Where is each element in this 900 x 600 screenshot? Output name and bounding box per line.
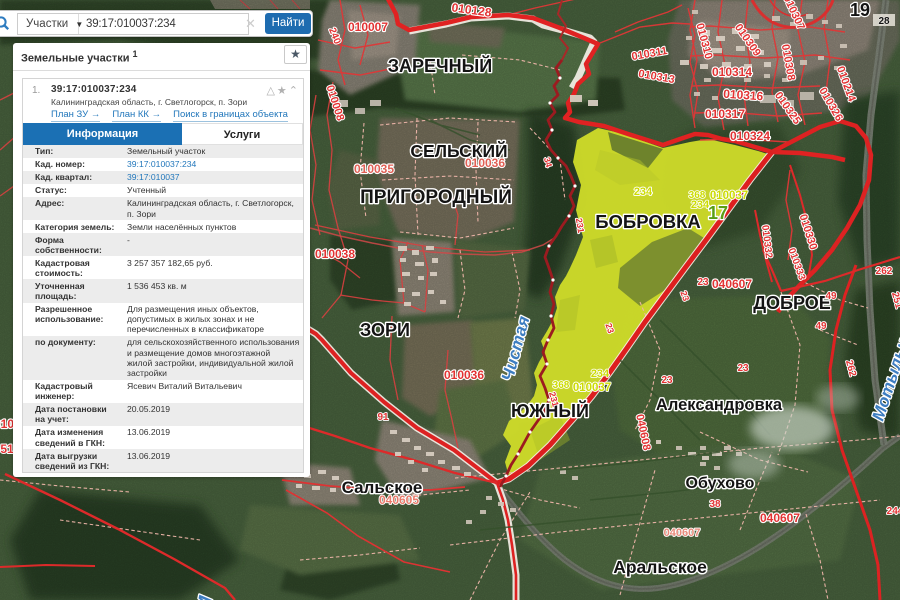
svg-text:010037: 010037 (573, 382, 611, 394)
svg-text:010036: 010036 (444, 368, 484, 382)
svg-text:010314: 010314 (712, 65, 752, 79)
svg-text:040607: 040607 (664, 527, 701, 539)
svg-text:ДОБРОЕ: ДОБРОЕ (753, 293, 831, 313)
svg-text:Александровка: Александровка (656, 396, 783, 414)
svg-text:23: 23 (737, 363, 749, 374)
svg-text:Аральское: Аральское (613, 557, 707, 577)
svg-text:23: 23 (661, 375, 673, 386)
svg-text:28: 28 (878, 16, 890, 27)
svg-text:49: 49 (815, 321, 827, 332)
svg-text:040605: 040605 (379, 493, 419, 507)
svg-text:010036: 010036 (465, 156, 505, 170)
svg-text:38: 38 (709, 499, 721, 510)
svg-text:234: 234 (591, 368, 610, 380)
svg-text:51: 51 (0, 442, 14, 456)
svg-text:010037: 010037 (710, 190, 748, 202)
svg-text:234: 234 (634, 186, 653, 198)
svg-text:19: 19 (850, 0, 870, 20)
svg-text:010035: 010035 (354, 162, 394, 176)
svg-text:010316: 010316 (723, 87, 764, 104)
svg-text:ЗАРЕЧНЫЙ: ЗАРЕЧНЫЙ (388, 55, 493, 76)
svg-text:010038: 010038 (315, 247, 355, 261)
svg-text:010007: 010007 (348, 20, 388, 34)
svg-text:49: 49 (825, 291, 837, 302)
svg-text:ЗОРИ: ЗОРИ (360, 320, 410, 340)
svg-text:БОБРОВКА: БОБРОВКА (595, 211, 700, 232)
svg-text:Обухово: Обухово (686, 475, 755, 492)
svg-text:17: 17 (708, 203, 728, 223)
svg-text:040607: 040607 (712, 277, 752, 291)
svg-text:010324: 010324 (730, 129, 770, 143)
svg-text:23: 23 (697, 277, 709, 288)
svg-text:ПРИГОРОДНЫЙ: ПРИГОРОДНЫЙ (360, 186, 512, 208)
svg-text:244: 244 (887, 506, 900, 517)
svg-text:010317: 010317 (705, 107, 745, 121)
svg-text:91: 91 (377, 412, 389, 423)
svg-text:262: 262 (876, 266, 893, 277)
svg-text:040607: 040607 (760, 511, 800, 525)
svg-text:368: 368 (553, 380, 570, 391)
